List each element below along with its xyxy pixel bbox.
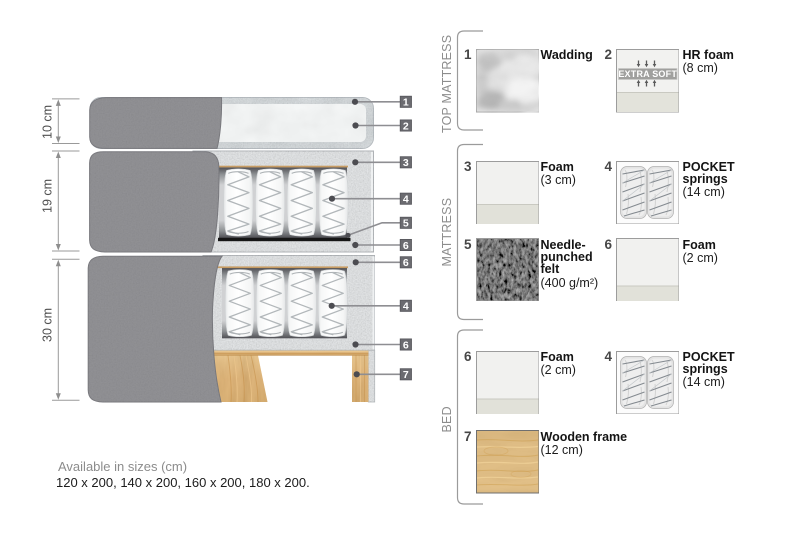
svg-text:5: 5 (403, 218, 409, 230)
svg-text:4: 4 (403, 194, 409, 206)
svg-text:TOP MATTRESS: TOP MATTRESS (440, 35, 454, 133)
svg-text:MATTRESS: MATTRESS (440, 198, 454, 267)
svg-text:6: 6 (403, 257, 409, 269)
svg-text:EXTRA SOFT: EXTRA SOFT (618, 69, 677, 79)
svg-text:2: 2 (403, 120, 409, 132)
svg-text:6: 6 (403, 339, 409, 351)
svg-text:6: 6 (403, 240, 409, 252)
svg-text:7: 7 (403, 369, 409, 381)
svg-text:30 cm: 30 cm (41, 308, 55, 342)
svg-text:BED: BED (440, 406, 454, 432)
svg-text:1: 1 (403, 97, 409, 109)
svg-text:19 cm: 19 cm (41, 179, 55, 213)
svg-text:4: 4 (403, 301, 409, 313)
svg-text:10 cm: 10 cm (41, 105, 55, 139)
svg-text:3: 3 (403, 157, 409, 169)
